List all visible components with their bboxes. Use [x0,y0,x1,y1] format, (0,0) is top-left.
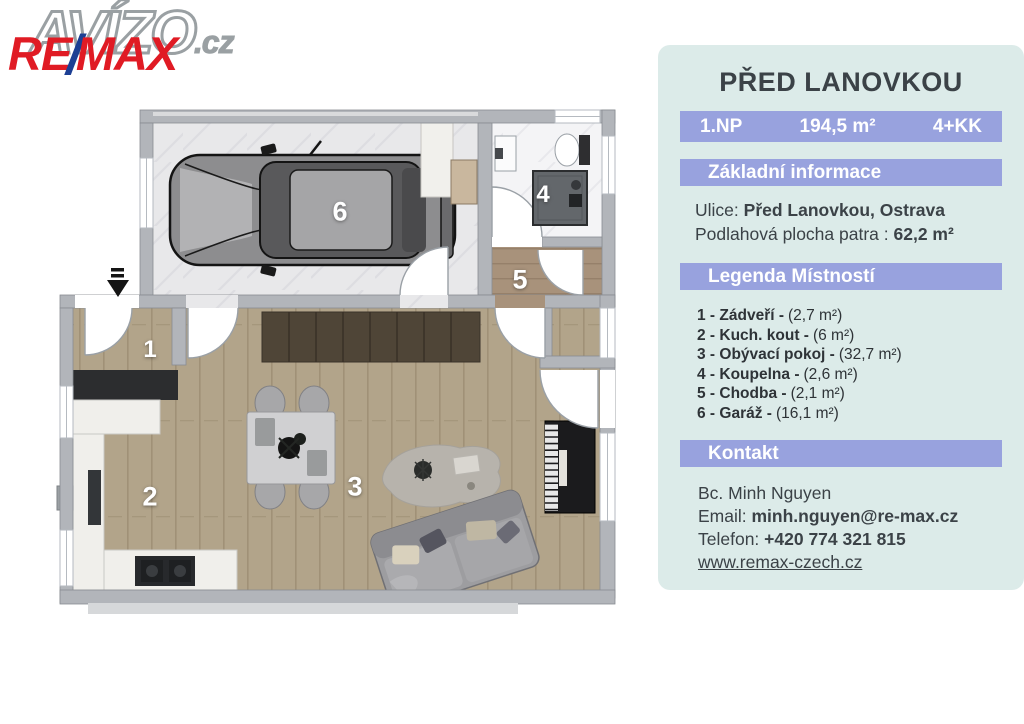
street-label: Ulice: [695,200,739,220]
legend-item: 5 - Chodba -(2,1 m²) [697,384,1024,404]
email-value: minh.nguyen@re-max.cz [752,506,959,526]
remax-logo-re: RE [8,27,71,80]
legend-item: 2 - Kuch. kout -(6 m²) [697,326,1024,346]
remax-logo-max: MAX [76,27,177,80]
legend-item: 6 - Garáž -(16,1 m²) [697,404,1024,424]
stats-banner: 1.NP 194,5 m² 4+KK [680,111,1002,142]
garage-wardrobe [451,160,477,204]
website-link[interactable]: www.remax-czech.cz [698,552,862,572]
coffee-table [383,445,501,507]
legend-item: 1 - Zádveří -(2,7 m²) [697,306,1024,326]
wardrobe [262,312,480,362]
section-contact: Kontakt [680,440,1002,467]
stat-layout: 4+KK [933,116,982,138]
entrance-arrow-icon [105,268,131,305]
contact-block: Bc. Minh Nguyen Email: minh.nguyen@re-ma… [698,482,1006,574]
car-top-view [170,141,455,277]
garage-cabinet [421,123,453,197]
room-label-garage: 6 [332,197,347,228]
floor-area-row: Podlahová plocha patra : 62,2 m² [695,222,1006,246]
website-row: www.remax-czech.cz [698,551,1006,574]
floorplan: 1 2 3 4 5 6 [55,98,620,623]
oven [88,470,101,525]
street-row: Ulice: Před Lanovkou, Ostrava [695,198,1006,222]
floor-area-value: 62,2 m² [894,224,954,244]
legend-item: 4 - Koupelna -(2,6 m²) [697,365,1024,385]
entry-closet [73,370,178,400]
room-label-living: 3 [347,472,362,503]
street-value: Před Lanovkou, Ostrava [744,200,945,220]
panel-title: PŘED LANOVKOU [658,67,1024,98]
legend-item: 3 - Obývací pokoj -(32,7 m²) [697,345,1024,365]
avizo-logo-suffix: .cz [194,24,234,60]
email-label: Email: [698,506,747,526]
stat-area: 194,5 m² [800,116,876,138]
section-legend: Legenda Místností [680,263,1002,290]
phone-label: Telefon: [698,529,759,549]
floor-area-label: Podlahová plocha patra : [695,224,889,244]
room-label-bath: 4 [536,181,549,209]
section-basic-info: Základní informace [680,159,1002,186]
room-label-hall: 5 [512,265,527,296]
info-panel: PŘED LANOVKOU 1.NP 194,5 m² 4+KK Základn… [658,45,1024,590]
basic-info: Ulice: Před Lanovkou, Ostrava Podlahová … [695,198,1006,246]
remax-logo: RE/MAX [8,26,177,81]
piano [545,421,595,513]
garage-door [153,112,478,116]
room-label-entry: 1 [143,336,156,364]
terrace-strip [88,603,518,614]
agent-name: Bc. Minh Nguyen [698,482,1006,505]
page: AVÍZO.cz RE/MAX [0,0,1024,724]
room-legend: 1 - Zádveří -(2,7 m²) 2 - Kuch. kout -(6… [697,306,1024,423]
phone-row: Telefon: +420 774 321 815 [698,528,1006,551]
floorplan-drawing [55,98,620,623]
room-label-kitchen: 2 [142,482,157,513]
phone-value: +420 774 321 815 [764,529,906,549]
email-row: Email: minh.nguyen@re-max.cz [698,505,1006,528]
stat-floor: 1.NP [700,116,742,138]
